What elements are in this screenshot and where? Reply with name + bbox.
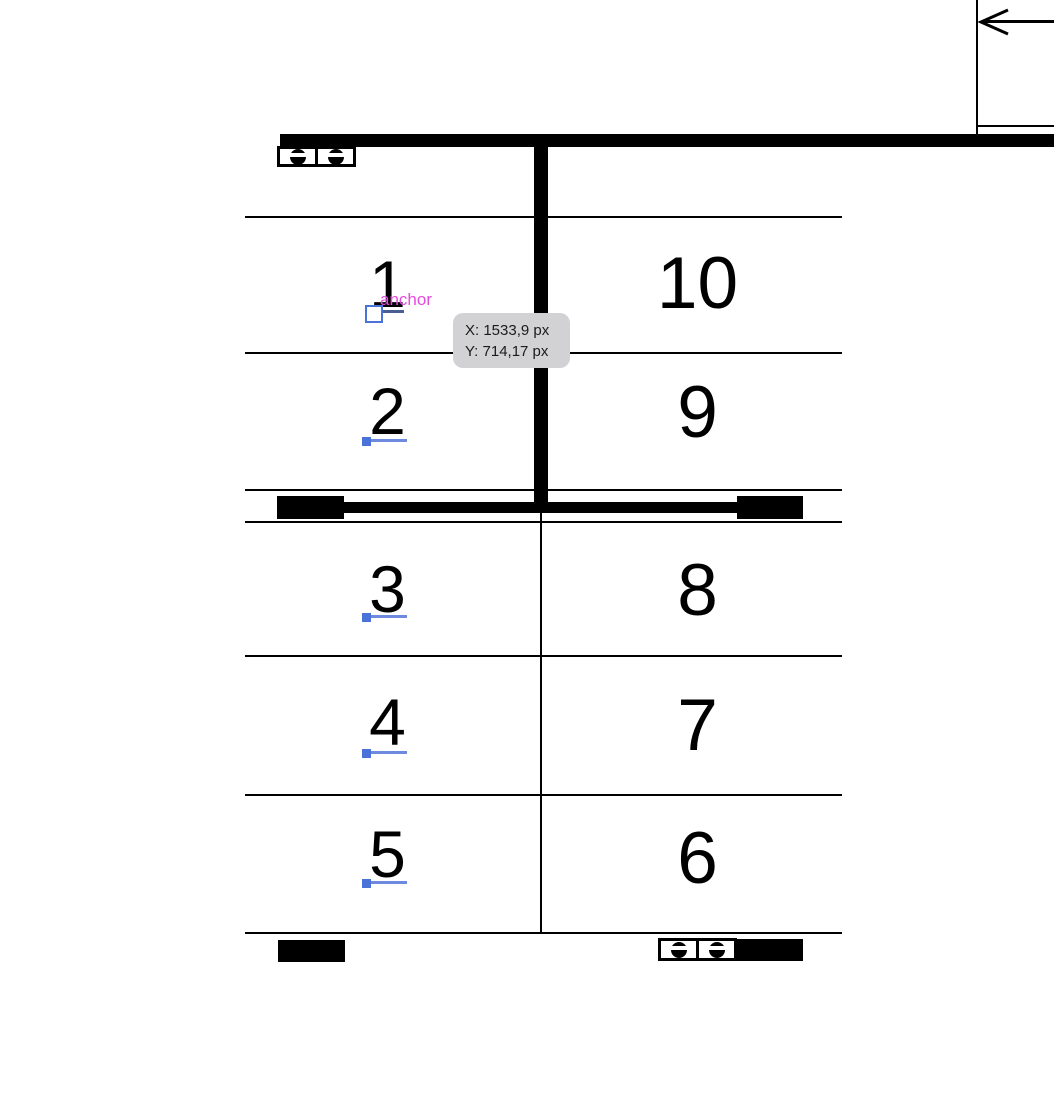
anchor-handle-2[interactable]: [362, 437, 371, 446]
stall-number-4[interactable]: 4: [305, 689, 470, 755]
arrow-left-icon: [977, 6, 1011, 38]
socket-icon: [696, 938, 737, 961]
socket-pair-bottom-right: [658, 938, 737, 961]
top-right-horizontal-line: [976, 125, 1054, 127]
slotted-circle-icon: [709, 942, 725, 958]
text-baseline-1: [383, 310, 404, 313]
anchor-handle-3[interactable]: [362, 613, 371, 622]
stall-number-3[interactable]: 3: [305, 556, 470, 622]
middle-wall-bar: [278, 502, 803, 513]
stall-line-5: [245, 655, 842, 657]
stall-number-10[interactable]: 10: [615, 247, 780, 320]
cursor-coordinates-tooltip: X: 1533,9 px Y: 714,17 px: [453, 313, 570, 368]
stall-number-6[interactable]: 6: [615, 822, 780, 895]
cursor-y-readout: Y: 714,17 px: [465, 341, 570, 362]
slotted-circle-icon: [671, 942, 687, 958]
center-divider-line-lower: [540, 513, 542, 934]
stall-number-5[interactable]: 5: [305, 821, 470, 887]
top-wall: [280, 134, 1054, 147]
anchor-handle-4[interactable]: [362, 749, 371, 758]
slotted-circle-icon: [328, 149, 344, 165]
stall-number-8[interactable]: 8: [615, 554, 780, 627]
socket-icon: [658, 938, 699, 961]
stall-line-4: [245, 521, 842, 523]
socket-pair-top-left: [277, 146, 356, 167]
middle-wall-left-cap: [277, 496, 344, 519]
bottom-left-block: [278, 940, 345, 962]
cursor-x-readout: X: 1533,9 px: [465, 320, 570, 341]
stall-line-6: [245, 794, 842, 796]
middle-wall-right-cap: [737, 496, 803, 519]
stall-line-7: [245, 932, 842, 934]
design-canvas[interactable]: 1 2 3 4 5 10 9 8 7 6 anchor X: 1533,9 px…: [0, 0, 1054, 1116]
anchor-label: anchor: [380, 291, 432, 309]
stall-number-9[interactable]: 9: [615, 376, 780, 449]
slotted-circle-icon: [290, 149, 306, 165]
stall-number-7[interactable]: 7: [615, 689, 780, 762]
socket-icon: [315, 146, 356, 167]
socket-icon: [277, 146, 318, 167]
stall-number-2[interactable]: 2: [305, 378, 470, 444]
anchor-handle-5[interactable]: [362, 879, 371, 888]
stall-line-3: [245, 489, 842, 491]
stall-line-1: [245, 216, 842, 218]
bottom-right-block: [737, 939, 803, 961]
